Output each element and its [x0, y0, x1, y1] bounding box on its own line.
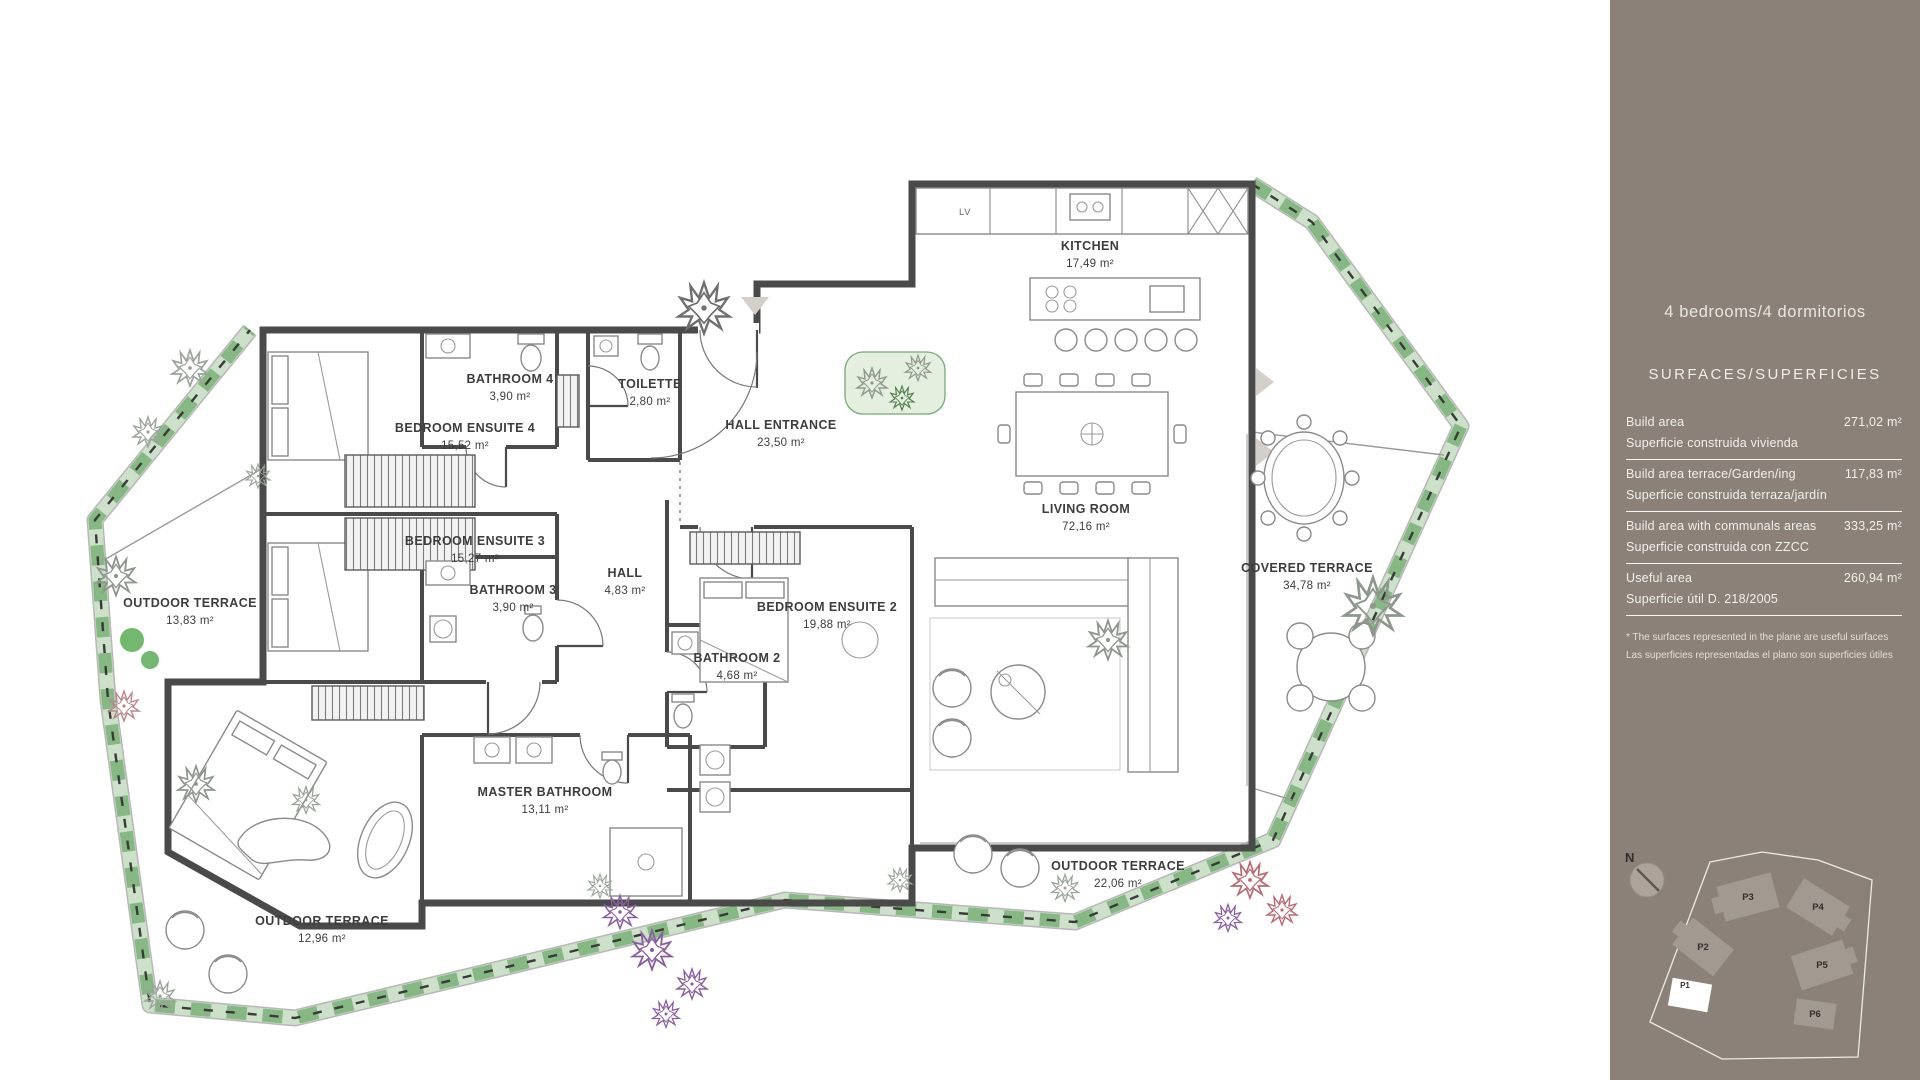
- label-outdoor-terrace-right: OUTDOOR TERRACE: [1051, 859, 1185, 873]
- site-label-p4: P4: [1812, 902, 1824, 913]
- dining-table: [998, 374, 1186, 494]
- label-bathroom-4: BATHROOM 4: [466, 372, 553, 386]
- svg-text:22,06 m²: 22,06 m²: [1094, 878, 1142, 890]
- table-row: Build area271,02 m² Superficie construid…: [1626, 408, 1902, 460]
- floorplan-page: LV: [0, 0, 1920, 1080]
- row-label-en: Useful area: [1626, 571, 1692, 585]
- svg-text:34,78 m²: 34,78 m²: [1283, 580, 1331, 592]
- surfaces-heading: SURFACES/SUPERFICIES: [1610, 366, 1920, 383]
- kitchen-island: [1030, 278, 1200, 351]
- svg-text:19,88 m²: 19,88 m²: [803, 619, 851, 631]
- svg-text:3,90 m²: 3,90 m²: [489, 391, 530, 403]
- label-kitchen: KITCHEN: [1061, 239, 1119, 253]
- site-label-p5: P5: [1816, 960, 1828, 971]
- row-label-es: Superficie útil D. 218/2005: [1626, 592, 1902, 606]
- footnote-en: * The surfaces represented in the plane …: [1626, 630, 1902, 646]
- svg-text:23,50 m²: 23,50 m²: [757, 437, 805, 449]
- site-buildings: [1666, 872, 1861, 1029]
- site-label-p1: P1: [1680, 981, 1690, 990]
- svg-text:2,80 m²: 2,80 m²: [629, 396, 670, 408]
- row-value: 117,83 m²: [1845, 467, 1902, 481]
- label-living-room: LIVING ROOM: [1042, 502, 1130, 516]
- site-label-p3: P3: [1742, 892, 1754, 903]
- row-label-en: Build area: [1626, 415, 1684, 429]
- row-label-es: Superficie construida terraza/jardín: [1626, 488, 1902, 502]
- label-bathroom-2: BATHROOM 2: [693, 651, 780, 665]
- master-bathroom-fixtures: [347, 737, 730, 896]
- label-hall-entrance: HALL ENTRANCE: [725, 418, 836, 432]
- label-toilette: TOILETTE: [618, 377, 681, 391]
- svg-text:3,90 m²: 3,90 m²: [492, 602, 533, 614]
- site-label-p2: P2: [1697, 942, 1709, 953]
- svg-text:15,27 m²: 15,27 m²: [451, 553, 499, 565]
- footnote-es: Las superficies representadas el plano s…: [1626, 648, 1902, 664]
- label-hall: HALL: [608, 566, 643, 580]
- bathroom2-fixtures: [672, 632, 698, 728]
- svg-text:15,52 m²: 15,52 m²: [441, 440, 489, 452]
- label-outdoor-terrace-bottom: OUTDOOR TERRACE: [255, 914, 389, 928]
- unit-type-title: 4 bedrooms/4 dormitorios: [1610, 303, 1920, 322]
- table-row: Build area terrace/Garden/ing117,83 m² S…: [1626, 460, 1902, 512]
- svg-text:4,68 m²: 4,68 m²: [716, 670, 757, 682]
- sofa-set: [930, 558, 1178, 772]
- label-covered-terrace: COVERED TERRACE: [1241, 561, 1373, 575]
- label-bedroom-2: BEDROOM ENSUITE 2: [757, 600, 897, 614]
- label-bedroom-3: BEDROOM ENSUITE 3: [405, 534, 545, 548]
- row-label-es: Superficie construida vivienda: [1626, 436, 1902, 450]
- svg-text:12,96 m²: 12,96 m²: [298, 933, 346, 945]
- kitchen-counter: LV: [916, 188, 1248, 234]
- svg-text:17,49 m²: 17,49 m²: [1066, 258, 1114, 270]
- floor-plan: LV: [0, 0, 1610, 1080]
- site-label-p6: P6: [1809, 1009, 1821, 1020]
- compass-north-label: N: [1625, 850, 1634, 865]
- row-label-en: Build area terrace/Garden/ing: [1626, 467, 1796, 481]
- row-value: 260,94 m²: [1844, 571, 1902, 585]
- label-bedroom-4: BEDROOM ENSUITE 4: [395, 421, 535, 435]
- entrance-planter: [845, 352, 945, 414]
- info-sidebar: 4 bedrooms/4 dormitorios SURFACES/SUPERF…: [1610, 0, 1920, 1080]
- surfaces-table: Build area271,02 m² Superficie construid…: [1626, 408, 1902, 616]
- table-row: Useful area260,94 m² Superficie útil D. …: [1626, 564, 1902, 616]
- svg-text:72,16 m²: 72,16 m²: [1062, 521, 1110, 533]
- label-master-bathroom: MASTER BATHROOM: [478, 785, 613, 799]
- bathroom4-fixtures: [426, 334, 544, 371]
- row-value: 333,25 m²: [1844, 519, 1902, 533]
- table-row: Build area with communals areas333,25 m²…: [1626, 512, 1902, 564]
- highlighted-building: [1668, 978, 1712, 1013]
- site-plan: N P3 P4 P2 P5 P6 P1: [1615, 842, 1915, 1077]
- toilette-fixtures: [594, 334, 662, 370]
- svg-text:13,11 m²: 13,11 m²: [522, 804, 569, 816]
- appliance-label: LV: [959, 207, 971, 218]
- bedroom2-furniture: [700, 578, 878, 682]
- bedroom4-furniture: [268, 352, 368, 460]
- row-label-es: Superficie construida con ZZCC: [1626, 540, 1902, 554]
- label-bathroom-3: BATHROOM 3: [469, 583, 556, 597]
- svg-text:4,83 m²: 4,83 m²: [604, 585, 645, 597]
- svg-text:13,83 m²: 13,83 m²: [166, 615, 214, 627]
- row-value: 271,02 m²: [1844, 415, 1902, 429]
- row-label-en: Build area with communals areas: [1626, 519, 1816, 533]
- compass-icon: [1630, 863, 1664, 897]
- surfaces-footnote: * The surfaces represented in the plane …: [1626, 630, 1902, 664]
- label-outdoor-terrace-left: OUTDOOR TERRACE: [123, 596, 257, 610]
